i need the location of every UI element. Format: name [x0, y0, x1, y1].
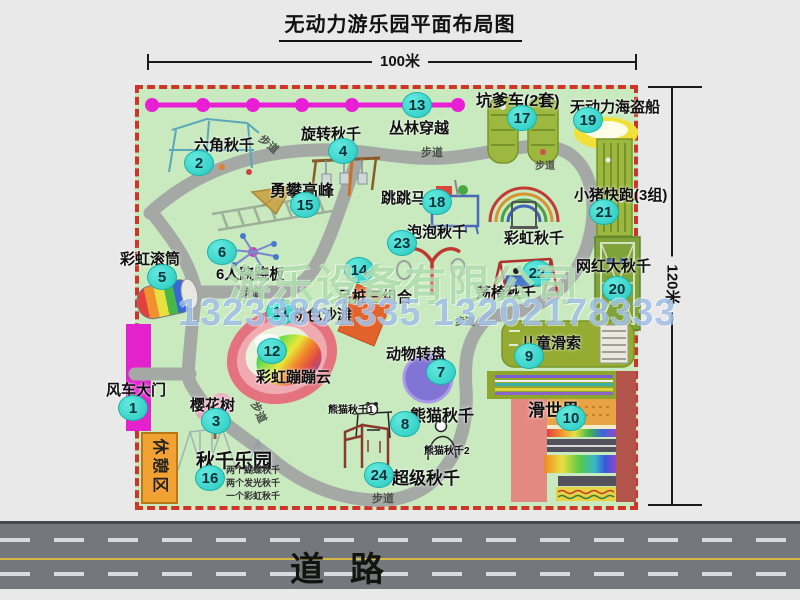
park-layout-screenshot: 无动力游乐园平面布局图 100米 120米	[0, 0, 800, 600]
badge-6: 6	[207, 239, 237, 265]
label-big-swing: 网红大秋千	[576, 255, 651, 276]
badge-24: 24	[364, 462, 394, 488]
dim-top-label: 100米	[372, 50, 428, 71]
badge-21: 21	[589, 199, 619, 225]
walkway-tag-2: 步道	[421, 144, 443, 160]
badge-23: 23	[387, 230, 417, 256]
label-super-swing: 超级秋千	[392, 464, 460, 489]
walkway-tag-5: 步道	[455, 313, 475, 328]
walkway-tag-4: 步道	[240, 284, 262, 300]
label-panda-swing-1: 熊猫秋千1	[328, 401, 374, 416]
badge-14: 14	[344, 257, 374, 283]
badge-22: 22	[522, 260, 552, 286]
label-pig-run: 小猪快跑(3组)	[574, 184, 667, 205]
rest-area-label: 休憩区	[150, 437, 174, 497]
badge-10: 10	[556, 405, 586, 431]
badge-11: 11	[266, 299, 296, 325]
badge-13: 13	[402, 92, 432, 118]
badge-7: 7	[426, 359, 456, 385]
page-title: 无动力游乐园平面布局图	[0, 8, 800, 42]
badge-9: 9	[514, 343, 544, 369]
badge-15: 15	[290, 192, 320, 218]
badge-2: 2	[184, 150, 214, 176]
swing-park-note-2: 两个发光秋千	[226, 476, 280, 489]
label-jungle-zipline: 丛林穿越	[389, 117, 449, 138]
badge-19: 19	[573, 107, 603, 133]
walkway-tag-7: 步道	[372, 490, 394, 506]
swing-park-note-3: 一个彩虹秋千	[226, 489, 280, 502]
label-rainbow-cloud: 彩虹蹦蹦云	[256, 366, 331, 387]
badge-8: 8	[390, 411, 420, 437]
badge-1: 1	[118, 395, 148, 421]
label-hanging-post-combo: 吊桩三组合	[337, 286, 412, 307]
road-label: 道路	[150, 542, 550, 591]
label-jumping-horse: 跳跳马	[381, 187, 426, 208]
label-panda-swing-2: 熊猫秋千2	[424, 442, 470, 457]
badge-12: 12	[257, 338, 287, 364]
dim-top-tick-right	[635, 54, 637, 70]
dim-right-tick-top	[648, 86, 702, 88]
dim-top-tick-left	[147, 54, 149, 70]
walkway-tag-3: 步道	[535, 157, 555, 172]
badge-4: 4	[328, 138, 358, 164]
badge-16: 16	[195, 465, 225, 491]
badge-3: 3	[201, 408, 231, 434]
label-seesaw: 6人跷跷板	[216, 263, 284, 284]
dim-right-label: 120米	[663, 257, 684, 313]
badge-20: 20	[602, 276, 632, 302]
label-rainbow-swing: 彩虹秋千	[504, 227, 564, 248]
swing-park-note-1: 两个蝴蝶秋千	[226, 463, 280, 476]
road: 道路	[0, 521, 800, 589]
page-title-text: 无动力游乐园平面布局图	[279, 8, 522, 42]
dim-right-tick-bottom	[648, 504, 702, 506]
label-swing-chair: 荡椅秋千	[476, 282, 536, 303]
label-pink-beach: 粉色沙滩	[292, 304, 352, 325]
badge-5: 5	[147, 264, 177, 290]
badge-17: 17	[507, 105, 537, 131]
badge-18: 18	[422, 189, 452, 215]
